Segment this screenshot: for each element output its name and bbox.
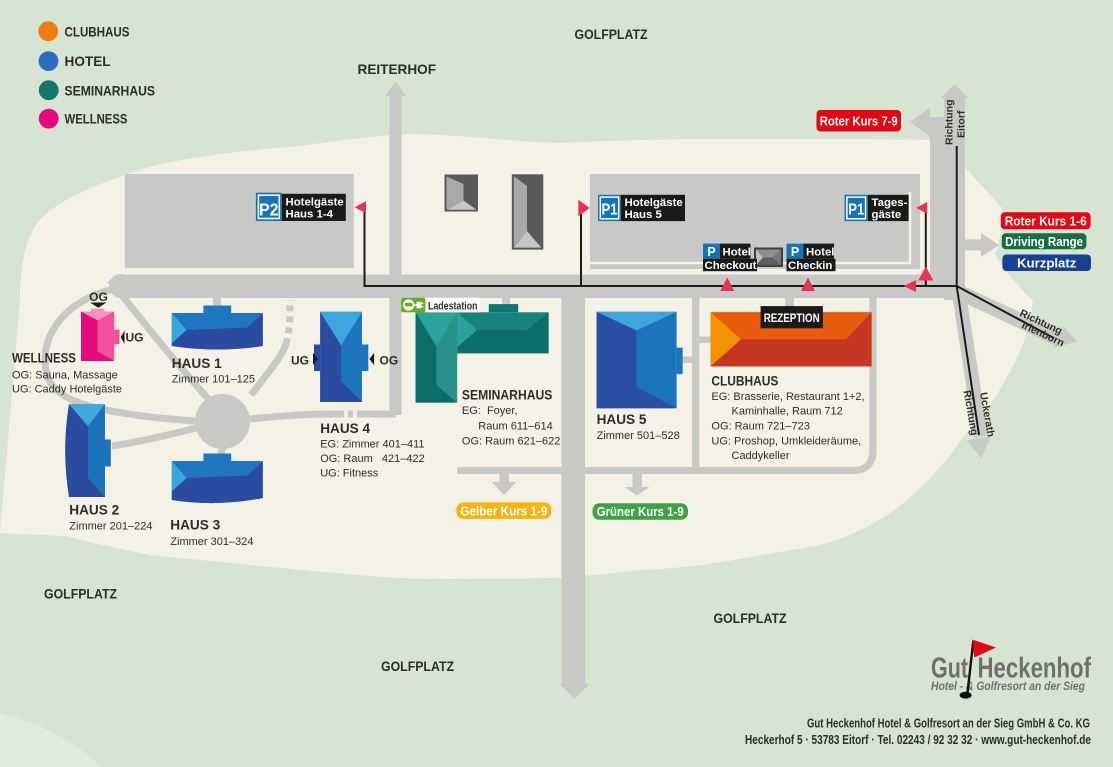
svg-text:GOLFPLATZ: GOLFPLATZ: [714, 611, 787, 626]
svg-text:Hotel: Hotel: [723, 246, 751, 258]
svg-text:Raum 611–614: Raum 611–614: [478, 421, 552, 433]
svg-text:Zimmer 101–125: Zimmer 101–125: [172, 374, 255, 386]
svg-text:EG: Foyer,: EG: Foyer,: [462, 405, 518, 417]
svg-text:Hotel - & Golfresort an der S: Hotel - & Golfresort an der Sieg: [931, 679, 1085, 693]
svg-text:WELLNESS: WELLNESS: [65, 112, 128, 127]
svg-text:P: P: [791, 245, 799, 259]
svg-text:HAUS 4: HAUS 4: [320, 421, 370, 436]
svg-text:HAUS 3: HAUS 3: [170, 518, 220, 533]
svg-text:Hotelgäste: Hotelgäste: [286, 197, 344, 209]
svg-text:WELLNESS: WELLNESS: [12, 351, 76, 366]
svg-text:REZEPTION: REZEPTION: [764, 311, 820, 325]
svg-text:GOLFPLATZ: GOLFPLATZ: [44, 587, 117, 602]
svg-text:Zimmer 301–324: Zimmer 301–324: [170, 536, 253, 548]
svg-text:Gelber Kurs 1-9: Gelber Kurs 1-9: [460, 503, 547, 518]
svg-text:OG: OG: [380, 354, 399, 368]
svg-text:EG: Zimmer 401–411: EG: Zimmer 401–411: [320, 439, 424, 451]
svg-text:Eitorf: Eitorf: [956, 110, 968, 138]
svg-text:P1: P1: [848, 202, 864, 219]
svg-text:Hotelgäste: Hotelgäste: [625, 197, 683, 209]
svg-text:HAUS 1: HAUS 1: [172, 356, 222, 371]
svg-text:Grüner Kurs 1-9: Grüner Kurs 1-9: [597, 504, 684, 519]
svg-text:Heckerhof 5 · 53783 Eitorf · T: Heckerhof 5 · 53783 Eitorf · Tel. 02243 …: [745, 733, 1091, 747]
svg-text:OG: Raum 621–622: OG: Raum 621–622: [462, 436, 560, 448]
svg-text:OG: OG: [89, 290, 108, 304]
svg-text:P2: P2: [259, 200, 279, 220]
svg-text:UG: Fitness: UG: Fitness: [320, 468, 379, 480]
svg-text:Hotel: Hotel: [806, 246, 834, 258]
svg-text:P: P: [707, 245, 715, 259]
svg-text:Checkout: Checkout: [705, 260, 757, 272]
svg-text:EG: Brasserie, Restaurant 1+2,: EG: Brasserie, Restaurant 1+2,: [711, 391, 864, 403]
svg-text:HAUS 2: HAUS 2: [69, 503, 119, 518]
svg-text:Zimmer 201–224: Zimmer 201–224: [69, 521, 152, 533]
svg-text:UG: Proshop, Umkleideräume,: UG: Proshop, Umkleideräume,: [711, 436, 861, 448]
svg-text:Haus 1-4: Haus 1-4: [286, 209, 334, 221]
svg-text:UG: UG: [126, 331, 144, 345]
svg-text:OG: Raum 421–422: OG: Raum 421–422: [320, 453, 425, 465]
svg-text:GOLFPLATZ: GOLFPLATZ: [575, 27, 648, 42]
svg-text:Gut Heckenhof Hotel & Golfreso: Gut Heckenhof Hotel & Golfresort an der …: [807, 717, 1090, 731]
svg-text:Zimmer 501–528: Zimmer 501–528: [597, 430, 680, 442]
svg-text:SEMINARHAUS: SEMINARHAUS: [65, 83, 156, 98]
svg-text:GOLFPLATZ: GOLFPLATZ: [381, 659, 454, 674]
svg-text:Kaminhalle, Raum 712: Kaminhalle, Raum 712: [732, 406, 843, 418]
svg-text:OG: Sauna, Massage: OG: Sauna, Massage: [12, 370, 118, 382]
svg-text:P1: P1: [602, 202, 618, 219]
svg-text:Haus 5: Haus 5: [625, 209, 663, 221]
svg-text:Caddykeller: Caddykeller: [732, 450, 790, 462]
svg-text:OG: Raum 721–723: OG: Raum 721–723: [711, 421, 809, 433]
svg-text:SEMINARHAUS: SEMINARHAUS: [462, 388, 553, 403]
svg-text:Ladestation: Ladestation: [428, 300, 478, 312]
svg-text:UG: Caddy Hotelgäste: UG: Caddy Hotelgäste: [12, 384, 122, 396]
svg-text:UG: UG: [291, 354, 309, 368]
svg-text:Driving Range: Driving Range: [1005, 234, 1083, 249]
svg-text:Checkin: Checkin: [788, 260, 832, 272]
svg-text:HAUS 5: HAUS 5: [597, 412, 647, 427]
svg-text:CLUBHAUS: CLUBHAUS: [65, 24, 130, 39]
svg-text:Richtung: Richtung: [944, 100, 956, 146]
svg-text:Roter Kurs 1-6: Roter Kurs 1-6: [1005, 213, 1087, 228]
svg-text:Roter Kurs 7-9: Roter Kurs 7-9: [820, 114, 898, 129]
svg-text:HOTEL: HOTEL: [65, 54, 111, 69]
svg-text:REITERHOF: REITERHOF: [358, 62, 437, 77]
svg-text:Tages-: Tages-: [872, 197, 908, 209]
svg-text:gäste: gäste: [872, 209, 902, 221]
svg-text:CLUBHAUS: CLUBHAUS: [711, 374, 778, 389]
svg-text:Kurzplatz: Kurzplatz: [1017, 255, 1077, 270]
